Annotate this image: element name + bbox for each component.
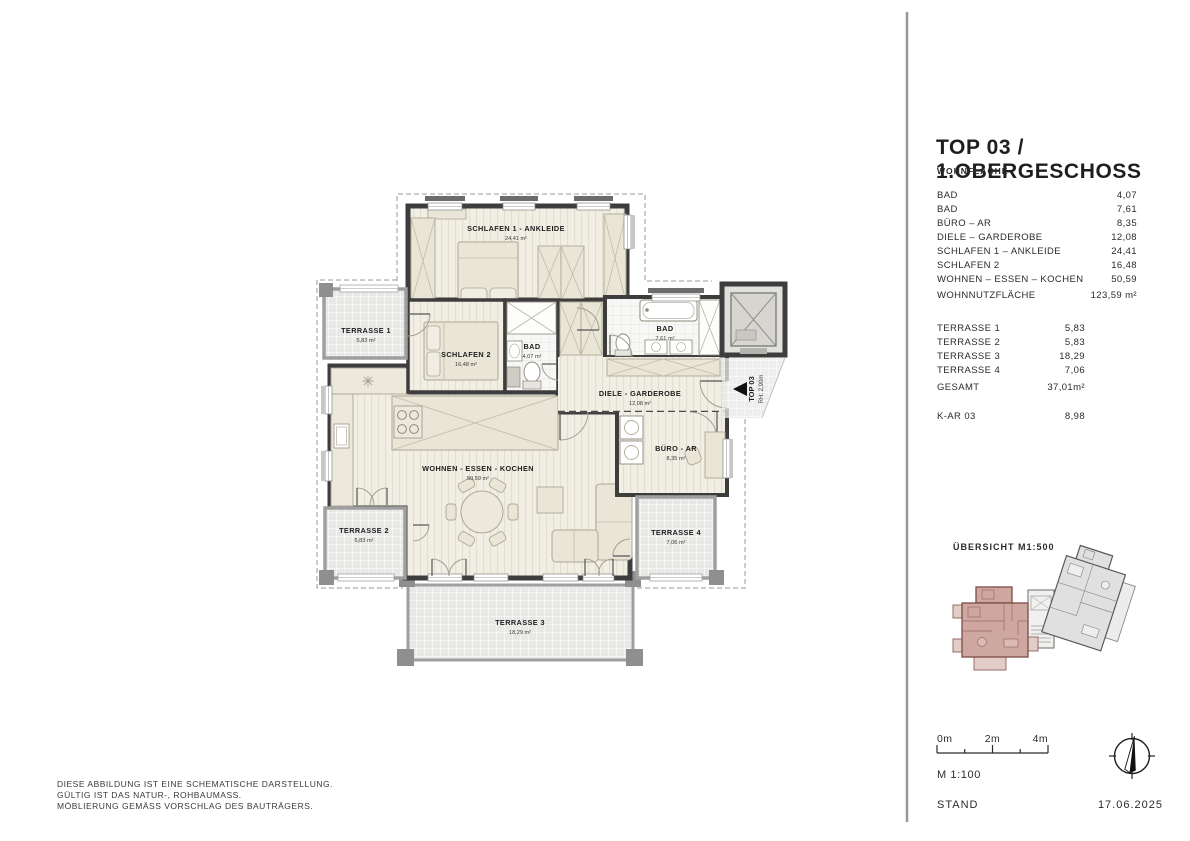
schlafen2-label: SCHLAFEN 2	[441, 350, 491, 359]
disclaimer-line: MÖBLIERUNG GEMÄSS VORSCHLAG DES BAUTRÄGE…	[57, 801, 333, 812]
terrace4-label: TERRASSE 4	[651, 528, 701, 537]
terrace3-label: TERRASSE 3	[495, 618, 545, 627]
bad2-area: 7,61 m²	[656, 336, 675, 342]
living-label: WOHNEN - ESSEN - KOCHEN	[422, 464, 534, 473]
wohnflaeche-heading: WOHNFLÄCHE	[937, 166, 1008, 176]
terrace1-area: 5,83 m²	[357, 338, 376, 344]
schlafen1-label: SCHLAFEN 1 - ANKLEIDE	[467, 224, 565, 233]
table-row: BÜRO – AR8,35	[937, 217, 1137, 231]
schlafen1-area: 24,41 m²	[505, 236, 527, 242]
scale-2m-label: 2m	[985, 733, 1000, 745]
room-bad2: BAD 7,61 m²	[605, 297, 722, 357]
row-label: WOHNEN – ESSEN – KOCHEN	[937, 273, 1083, 287]
table-row: TERRASSE 25,83	[937, 336, 1085, 350]
disclaimer-line: GÜLTIG IST DAS NATUR-, ROHBAUMASS.	[57, 790, 333, 801]
row-label: K-AR 03	[937, 410, 976, 424]
compass-icon	[1109, 733, 1155, 779]
table-row: BAD7,61	[937, 203, 1137, 217]
uebersicht-heading: ÜBERSICHT M1:500	[953, 542, 1055, 552]
stand-date: 17.06.2025	[1098, 799, 1163, 811]
row-value: 123,59 m²	[1091, 289, 1137, 303]
row-label: SCHLAFEN 1 – ANKLEIDE	[937, 245, 1061, 259]
terrace-1: TERRASSE 1 5,83 m²	[319, 283, 406, 358]
row-label: WOHNNUTZFLÄCHE	[937, 289, 1036, 303]
table-row: TERRASSE 15,83	[937, 322, 1085, 336]
row-value: 7,06	[1065, 364, 1085, 378]
schlafen2-area: 16,48 m²	[455, 362, 477, 368]
terrace1-label: TERRASSE 1	[341, 326, 391, 335]
row-value: 37,01m²	[1047, 381, 1085, 395]
scale-4m-label: 4m	[1033, 733, 1048, 745]
entry-rh-label: RH: 2,90m	[759, 375, 765, 404]
terrace3-area: 18,29 m²	[509, 630, 531, 636]
row-label: TERRASSE 4	[937, 364, 1000, 378]
scale-text: M 1:100	[937, 769, 981, 781]
row-label: BAD	[937, 189, 958, 203]
terrace-4: TERRASSE 4 7,06 m²	[637, 497, 724, 585]
room-diele: DIELE - GARDEROBE 12,08 m²	[558, 357, 727, 412]
terrace-area-table: TERRASSE 15,83 TERRASSE 25,83 TERRASSE 3…	[937, 322, 1085, 424]
row-label: TERRASSE 1	[937, 322, 1000, 336]
floorplan-sheet: TERRASSE 3 18,29 m²	[0, 0, 1190, 841]
row-value: 8,98	[1065, 410, 1085, 424]
bad1-label: BAD	[523, 342, 540, 351]
row-value: 8,35	[1117, 217, 1137, 231]
stand-row: STAND 17.06.2025	[937, 799, 1163, 811]
table-row: SCHLAFEN 216,48	[937, 259, 1137, 273]
bad1-area: 4,07 m²	[523, 354, 542, 360]
total-row: WOHNNUTZFLÄCHE123,59 m²	[937, 289, 1137, 303]
row-value: 5,83	[1065, 336, 1085, 350]
row-value: 4,07	[1117, 189, 1137, 203]
terrace-2: TERRASSE 2 5,83 m²	[319, 508, 405, 585]
bad2-label: BAD	[656, 324, 673, 333]
row-value: 16,48	[1111, 259, 1137, 273]
entry-top-label: TOP 03	[747, 376, 756, 402]
coffee-table	[537, 487, 563, 513]
page-title: TOP 03 / 1.OBERGESCHOSS	[936, 136, 1190, 184]
table-row: TERRASSE 47,06	[937, 364, 1085, 378]
row-value: 50,59	[1111, 273, 1137, 287]
row-label: BÜRO – AR	[937, 217, 991, 231]
row-label: BAD	[937, 203, 958, 217]
row-value: 12,08	[1111, 231, 1137, 245]
buero-label: BÜRO - AR	[655, 444, 697, 453]
table-row: SCHLAFEN 1 – ANKLEIDE24,41	[937, 245, 1137, 259]
row-value: 18,29	[1059, 350, 1085, 364]
room-area-table: BAD4,07 BAD7,61 BÜRO – AR8,35 DIELE – GA…	[937, 189, 1137, 303]
scale-bar	[937, 745, 1048, 753]
buero-area: 8,35 m²	[667, 456, 686, 462]
row-value: 5,83	[1065, 322, 1085, 336]
row-label: GESAMT	[937, 381, 980, 395]
bed-schlafen1	[458, 242, 518, 306]
room-buero: BÜRO - AR 8,35 m²	[617, 412, 727, 495]
terrace2-label: TERRASSE 2	[339, 526, 389, 535]
terrace4-area: 7,06 m²	[667, 540, 686, 546]
row-label: DIELE – GARDEROBE	[937, 231, 1043, 245]
diele-area: 12,08 m²	[629, 401, 651, 407]
scale-0m-label: 0m	[937, 733, 952, 745]
overview-unit-top03	[953, 587, 1038, 670]
stand-label: STAND	[937, 799, 978, 811]
terrace-3: TERRASSE 3 18,29 m²	[397, 571, 643, 666]
table-row: DIELE – GARDEROBE12,08	[937, 231, 1137, 245]
disclaimer-line: DIESE ABBILDUNG IST EINE SCHEMATISCHE DA…	[57, 779, 333, 790]
table-row: WOHNEN – ESSEN – KOCHEN50,59	[937, 273, 1137, 287]
elevator	[722, 284, 785, 355]
row-label: TERRASSE 3	[937, 350, 1000, 364]
overview-unit-neighbor	[1042, 542, 1142, 655]
row-value: 24,41	[1111, 245, 1137, 259]
row-label: TERRASSE 2	[937, 336, 1000, 350]
table-row: TERRASSE 318,29	[937, 350, 1085, 364]
kar-row: K-AR 038,98	[937, 410, 1085, 424]
row-value: 7,61	[1117, 203, 1137, 217]
row-label: SCHLAFEN 2	[937, 259, 1000, 273]
room-schlafen1: SCHLAFEN 1 - ANKLEIDE 24,41 m²	[408, 206, 627, 306]
overview-miniplan	[953, 542, 1142, 670]
terrace2-area: 5,83 m²	[355, 538, 374, 544]
gesamt-row: GESAMT37,01m²	[937, 381, 1085, 395]
diele-label: DIELE - GARDEROBE	[599, 389, 681, 398]
disclaimer-text: DIESE ABBILDUNG IST EINE SCHEMATISCHE DA…	[57, 779, 333, 811]
living-area: 50,59 m²	[467, 476, 489, 482]
table-row: BAD4,07	[937, 189, 1137, 203]
